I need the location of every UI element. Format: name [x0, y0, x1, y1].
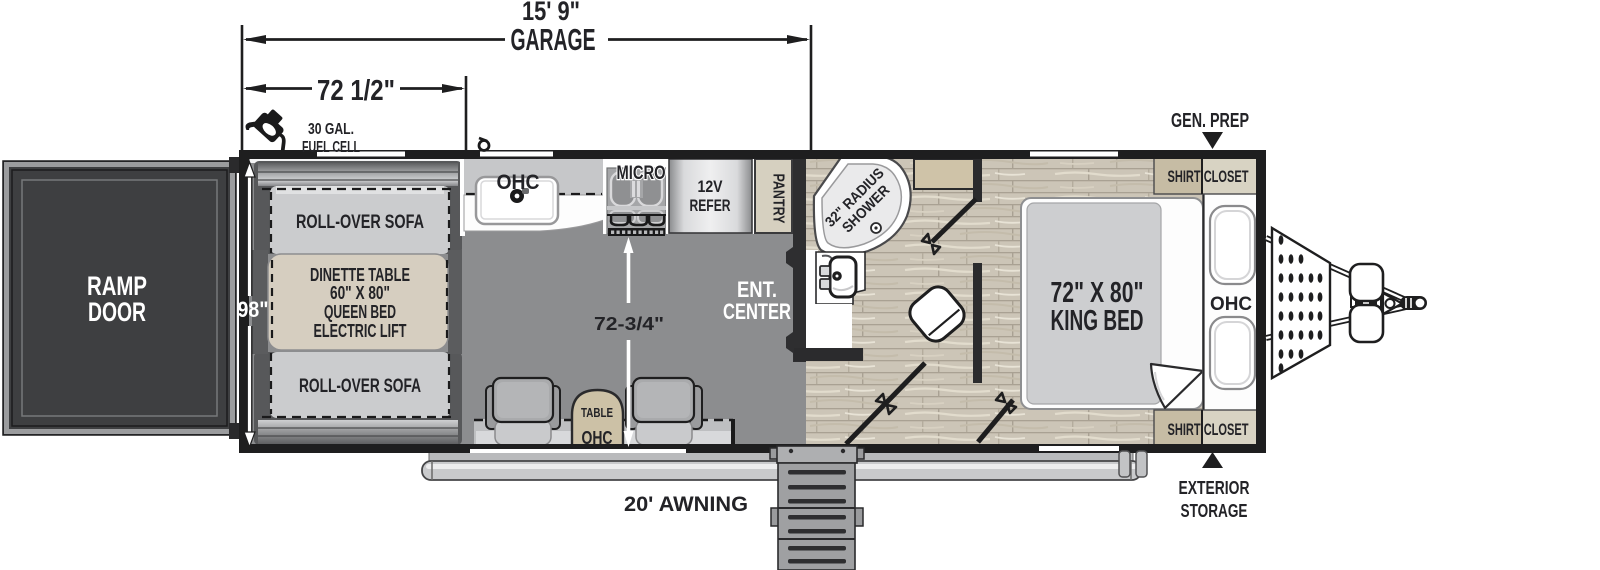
svg-text:CENTER: CENTER — [723, 299, 791, 324]
svg-text:DINETTE TABLE: DINETTE TABLE — [310, 265, 410, 285]
svg-text:OHC: OHC — [1210, 294, 1252, 315]
svg-text:TABLE: TABLE — [581, 406, 613, 420]
svg-text:MICRO: MICRO — [617, 163, 666, 184]
svg-text:QUEEN BED: QUEEN BED — [324, 302, 396, 322]
svg-text:12V: 12V — [698, 177, 724, 196]
svg-text:REFER: REFER — [690, 196, 731, 215]
svg-text:FUEL CELL: FUEL CELL — [302, 139, 360, 156]
svg-text:ROLL-OVER SOFA: ROLL-OVER SOFA — [296, 212, 424, 233]
svg-text:SHIRT CLOSET: SHIRT CLOSET — [1168, 420, 1249, 439]
svg-text:ROLL-OVER SOFA: ROLL-OVER SOFA — [299, 376, 421, 397]
svg-text:EXTERIOR: EXTERIOR — [1179, 478, 1250, 498]
svg-text:ELECTRIC LIFT: ELECTRIC LIFT — [314, 321, 407, 341]
svg-text:20' AWNING: 20' AWNING — [624, 493, 748, 516]
svg-text:72 1/2": 72 1/2" — [317, 75, 395, 107]
svg-text:SHIRT CLOSET: SHIRT CLOSET — [1168, 167, 1249, 186]
svg-text:72-3/4": 72-3/4" — [594, 314, 664, 334]
svg-text:60" X 80": 60" X 80" — [330, 283, 390, 303]
svg-text:98": 98" — [238, 297, 269, 322]
svg-text:STORAGE: STORAGE — [1181, 501, 1248, 521]
svg-text:KING BED: KING BED — [1051, 305, 1144, 337]
svg-text:DOOR: DOOR — [88, 297, 146, 327]
svg-text:OHC: OHC — [497, 171, 540, 194]
svg-text:GEN. PREP: GEN. PREP — [1171, 110, 1249, 132]
svg-text:GARAGE: GARAGE — [511, 22, 596, 57]
svg-text:PANTRY: PANTRY — [770, 174, 787, 225]
svg-text:30 GAL.: 30 GAL. — [308, 121, 354, 138]
